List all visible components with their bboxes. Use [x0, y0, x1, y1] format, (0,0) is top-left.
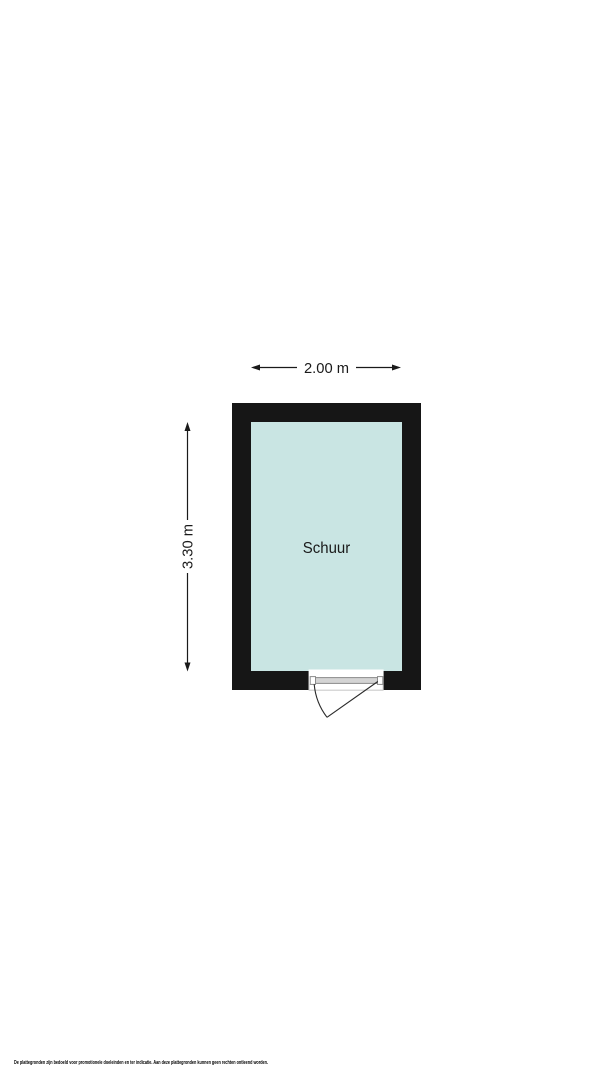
svg-text:2.00 m: 2.00 m	[304, 360, 349, 377]
svg-text:Schuur: Schuur	[303, 540, 351, 557]
svg-text:De plattegronden zijn bedoeld: De plattegronden zijn bedoeld voor promo…	[14, 1060, 268, 1066]
svg-text:3.30 m: 3.30 m	[180, 524, 197, 569]
